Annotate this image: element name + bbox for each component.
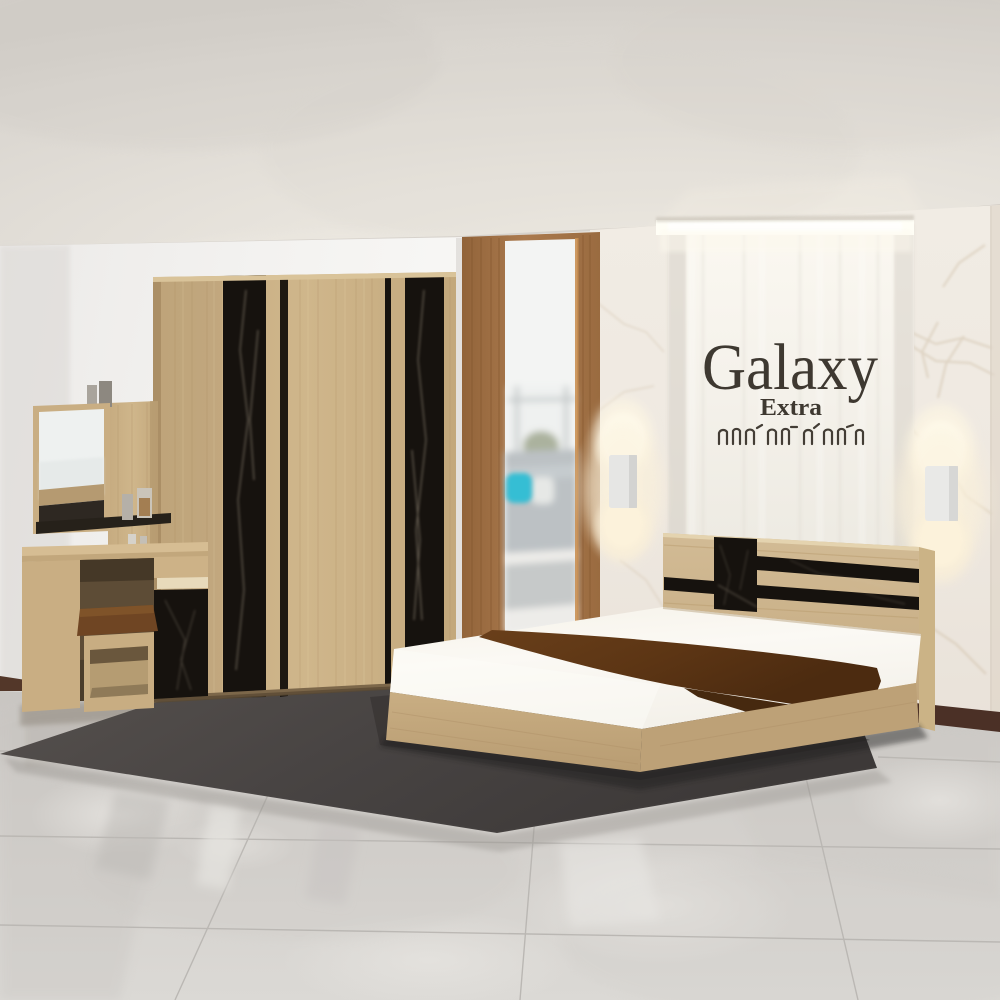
svg-text:Galaxy: Galaxy	[702, 331, 878, 404]
svg-text:Extra: Extra	[760, 395, 822, 421]
